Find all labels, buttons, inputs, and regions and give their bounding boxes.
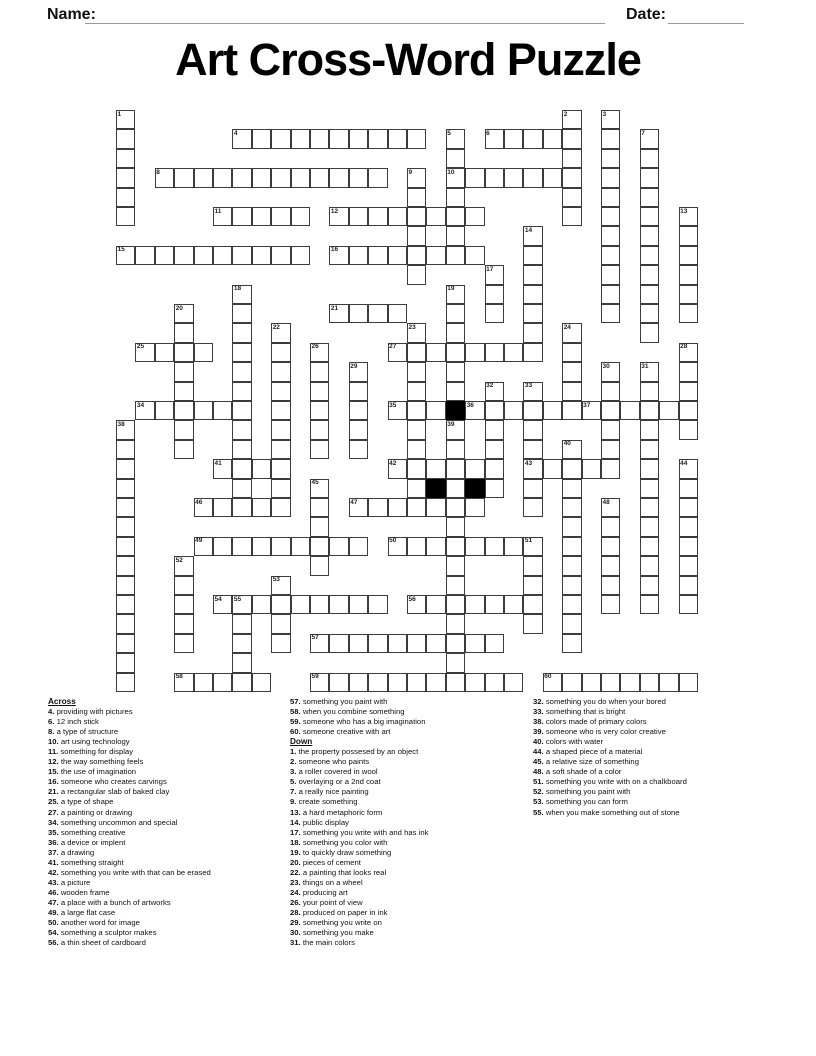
grid-cell[interactable] (407, 343, 426, 362)
grid-cell[interactable] (504, 401, 523, 420)
grid-cell[interactable] (562, 634, 581, 653)
grid-cell[interactable] (640, 129, 659, 148)
grid-cell[interactable] (271, 362, 290, 381)
grid-cell[interactable] (310, 595, 329, 614)
grid-cell[interactable] (446, 362, 465, 381)
grid-cell[interactable] (504, 343, 523, 362)
grid-cell[interactable] (252, 673, 271, 692)
grid-cell[interactable] (679, 420, 698, 439)
grid-cell[interactable] (271, 614, 290, 633)
grid-cell[interactable] (388, 673, 407, 692)
grid-cell[interactable] (640, 304, 659, 323)
grid-cell[interactable] (271, 246, 290, 265)
grid-cell[interactable] (465, 168, 484, 187)
grid-cell[interactable] (523, 401, 542, 420)
grid-cell[interactable] (562, 440, 581, 459)
grid-cell[interactable] (504, 537, 523, 556)
grid-cell[interactable] (116, 188, 135, 207)
grid-cell[interactable] (679, 595, 698, 614)
grid-cell[interactable] (465, 246, 484, 265)
grid-cell[interactable] (368, 673, 387, 692)
grid-cell[interactable] (271, 401, 290, 420)
grid-cell[interactable] (232, 634, 251, 653)
grid-cell[interactable] (368, 595, 387, 614)
grid-cell[interactable] (174, 304, 193, 323)
grid-cell[interactable] (601, 382, 620, 401)
grid-cell[interactable] (194, 537, 213, 556)
grid-cell[interactable] (271, 323, 290, 342)
grid-cell[interactable] (349, 207, 368, 226)
grid-cell[interactable] (426, 401, 445, 420)
grid-cell[interactable] (174, 246, 193, 265)
grid-cell[interactable] (679, 304, 698, 323)
grid-cell[interactable] (174, 673, 193, 692)
grid-cell[interactable] (291, 595, 310, 614)
grid-cell[interactable] (407, 634, 426, 653)
grid-cell[interactable] (523, 323, 542, 342)
grid-cell[interactable] (155, 343, 174, 362)
grid-cell[interactable] (446, 614, 465, 633)
grid-cell[interactable] (174, 362, 193, 381)
grid-cell[interactable] (252, 498, 271, 517)
grid-cell[interactable] (523, 459, 542, 478)
grid-cell[interactable] (349, 246, 368, 265)
grid-cell[interactable] (329, 595, 348, 614)
grid-cell[interactable] (368, 498, 387, 517)
grid-cell[interactable] (116, 479, 135, 498)
grid-cell[interactable] (446, 556, 465, 575)
grid-cell[interactable] (116, 556, 135, 575)
grid-cell[interactable] (640, 576, 659, 595)
grid-cell[interactable] (601, 401, 620, 420)
grid-cell[interactable] (523, 226, 542, 245)
grid-cell[interactable] (232, 420, 251, 439)
grid-cell[interactable] (310, 517, 329, 536)
grid-cell[interactable] (446, 168, 465, 187)
grid-cell[interactable] (446, 343, 465, 362)
grid-cell[interactable] (679, 517, 698, 536)
grid-cell[interactable] (213, 168, 232, 187)
grid-cell[interactable] (504, 673, 523, 692)
grid-cell[interactable] (504, 129, 523, 148)
grid-cell[interactable] (329, 168, 348, 187)
grid-cell[interactable] (310, 673, 329, 692)
grid-cell[interactable] (523, 285, 542, 304)
grid-cell[interactable] (601, 537, 620, 556)
grid-cell[interactable] (601, 498, 620, 517)
grid-cell[interactable] (388, 207, 407, 226)
grid-cell[interactable] (601, 129, 620, 148)
grid-cell[interactable] (620, 401, 639, 420)
grid-cell[interactable] (349, 537, 368, 556)
grid-cell[interactable] (291, 537, 310, 556)
grid-cell[interactable] (446, 653, 465, 672)
grid-cell[interactable] (523, 595, 542, 614)
grid-cell[interactable] (640, 265, 659, 284)
grid-cell[interactable] (426, 537, 445, 556)
grid-cell[interactable] (310, 168, 329, 187)
grid-cell[interactable] (426, 634, 445, 653)
grid-cell[interactable] (388, 304, 407, 323)
grid-cell[interactable] (407, 595, 426, 614)
grid-cell[interactable] (504, 168, 523, 187)
grid-cell[interactable] (349, 440, 368, 459)
grid-cell[interactable] (562, 576, 581, 595)
grid-cell[interactable] (601, 517, 620, 536)
grid-cell[interactable] (174, 595, 193, 614)
grid-cell[interactable] (310, 634, 329, 653)
grid-cell[interactable] (446, 459, 465, 478)
grid-cell[interactable] (349, 168, 368, 187)
grid-cell[interactable] (679, 207, 698, 226)
grid-cell[interactable] (155, 246, 174, 265)
grid-cell[interactable] (116, 129, 135, 148)
grid-cell[interactable] (543, 129, 562, 148)
grid-cell[interactable] (310, 537, 329, 556)
grid-cell[interactable] (329, 634, 348, 653)
grid-cell[interactable] (679, 479, 698, 498)
grid-cell[interactable] (426, 246, 445, 265)
grid-cell[interactable] (562, 188, 581, 207)
grid-cell[interactable] (349, 401, 368, 420)
grid-cell[interactable] (523, 537, 542, 556)
grid-cell[interactable] (640, 246, 659, 265)
grid-cell[interactable] (135, 343, 154, 362)
grid-cell[interactable] (252, 168, 271, 187)
grid-cell[interactable] (601, 265, 620, 284)
grid-cell[interactable] (407, 537, 426, 556)
grid-cell[interactable] (523, 382, 542, 401)
grid-cell[interactable] (465, 673, 484, 692)
grid-cell[interactable] (504, 595, 523, 614)
grid-cell[interactable] (426, 595, 445, 614)
grid-cell[interactable] (271, 634, 290, 653)
grid-cell[interactable] (640, 595, 659, 614)
grid-cell[interactable] (523, 440, 542, 459)
grid-cell[interactable] (407, 207, 426, 226)
grid-cell[interactable] (485, 343, 504, 362)
grid-cell[interactable] (174, 323, 193, 342)
grid-cell[interactable] (368, 168, 387, 187)
grid-cell[interactable] (329, 246, 348, 265)
grid-cell[interactable] (640, 226, 659, 245)
grid-cell[interactable] (174, 401, 193, 420)
grid-cell[interactable] (465, 207, 484, 226)
grid-cell[interactable] (407, 129, 426, 148)
grid-cell[interactable] (562, 382, 581, 401)
grid-cell[interactable] (388, 498, 407, 517)
grid-cell[interactable] (679, 226, 698, 245)
grid-cell[interactable] (271, 459, 290, 478)
grid-cell[interactable] (426, 459, 445, 478)
grid-cell[interactable] (232, 479, 251, 498)
grid-cell[interactable] (407, 226, 426, 245)
grid-cell[interactable] (407, 498, 426, 517)
grid-cell[interactable] (485, 634, 504, 653)
grid-cell[interactable] (582, 673, 601, 692)
grid-cell[interactable] (601, 149, 620, 168)
grid-cell[interactable] (329, 673, 348, 692)
grid-cell[interactable] (485, 285, 504, 304)
grid-cell[interactable] (407, 362, 426, 381)
grid-cell[interactable] (562, 401, 581, 420)
grid-cell[interactable] (135, 401, 154, 420)
grid-cell[interactable] (601, 673, 620, 692)
grid-cell[interactable] (407, 246, 426, 265)
grid-cell[interactable] (174, 614, 193, 633)
grid-cell[interactable] (640, 188, 659, 207)
grid-cell[interactable] (485, 440, 504, 459)
grid-cell[interactable] (252, 459, 271, 478)
grid-cell[interactable] (252, 129, 271, 148)
grid-cell[interactable] (329, 129, 348, 148)
grid-cell[interactable] (562, 517, 581, 536)
grid-cell[interactable] (232, 285, 251, 304)
grid-cell[interactable] (485, 420, 504, 439)
grid-cell[interactable] (271, 168, 290, 187)
grid-cell[interactable] (116, 459, 135, 478)
grid-cell[interactable] (679, 343, 698, 362)
grid-cell[interactable] (640, 323, 659, 342)
grid-cell[interactable] (174, 634, 193, 653)
grid-cell[interactable] (640, 673, 659, 692)
grid-cell[interactable] (426, 498, 445, 517)
grid-cell[interactable] (485, 459, 504, 478)
grid-cell[interactable] (232, 129, 251, 148)
grid-cell[interactable] (446, 188, 465, 207)
grid-cell[interactable] (601, 459, 620, 478)
grid-cell[interactable] (446, 149, 465, 168)
grid-cell[interactable] (562, 362, 581, 381)
grid-cell[interactable] (582, 459, 601, 478)
grid-cell[interactable] (194, 673, 213, 692)
grid-cell[interactable] (271, 576, 290, 595)
grid-cell[interactable] (407, 673, 426, 692)
grid-cell[interactable] (232, 498, 251, 517)
grid-cell[interactable] (232, 207, 251, 226)
grid-cell[interactable] (407, 265, 426, 284)
grid-cell[interactable] (388, 246, 407, 265)
grid-cell[interactable] (640, 459, 659, 478)
grid-cell[interactable] (155, 168, 174, 187)
grid-cell[interactable] (252, 537, 271, 556)
grid-cell[interactable] (485, 382, 504, 401)
grid-cell[interactable] (310, 440, 329, 459)
grid-cell[interactable] (116, 653, 135, 672)
grid-cell[interactable] (679, 498, 698, 517)
grid-cell[interactable] (291, 129, 310, 148)
grid-cell[interactable] (252, 207, 271, 226)
grid-cell[interactable] (465, 634, 484, 653)
grid-cell[interactable] (407, 440, 426, 459)
grid-cell[interactable] (116, 517, 135, 536)
grid-cell[interactable] (446, 440, 465, 459)
grid-cell[interactable] (116, 440, 135, 459)
grid-cell[interactable] (465, 595, 484, 614)
grid-cell[interactable] (601, 285, 620, 304)
grid-cell[interactable] (426, 207, 445, 226)
grid-cell[interactable] (601, 188, 620, 207)
grid-cell[interactable] (232, 343, 251, 362)
grid-cell[interactable] (446, 207, 465, 226)
grid-cell[interactable] (640, 168, 659, 187)
grid-cell[interactable] (446, 285, 465, 304)
grid-cell[interactable] (310, 129, 329, 148)
grid-cell[interactable] (271, 440, 290, 459)
grid-cell[interactable] (562, 498, 581, 517)
grid-cell[interactable] (562, 207, 581, 226)
grid-cell[interactable] (329, 207, 348, 226)
grid-cell[interactable] (523, 246, 542, 265)
grid-cell[interactable] (543, 401, 562, 420)
grid-cell[interactable] (213, 459, 232, 478)
grid-cell[interactable] (640, 479, 659, 498)
grid-cell[interactable] (562, 110, 581, 129)
grid-cell[interactable] (640, 440, 659, 459)
grid-cell[interactable] (679, 576, 698, 595)
grid-cell[interactable] (601, 246, 620, 265)
grid-cell[interactable] (213, 207, 232, 226)
grid-cell[interactable] (543, 673, 562, 692)
grid-cell[interactable] (174, 343, 193, 362)
grid-cell[interactable] (310, 420, 329, 439)
grid-cell[interactable] (659, 401, 678, 420)
grid-cell[interactable] (232, 168, 251, 187)
grid-cell[interactable] (291, 246, 310, 265)
grid-cell[interactable] (485, 304, 504, 323)
grid-cell[interactable] (213, 673, 232, 692)
grid-cell[interactable] (232, 362, 251, 381)
grid-cell[interactable] (446, 537, 465, 556)
grid-cell[interactable] (271, 343, 290, 362)
grid-cell[interactable] (640, 517, 659, 536)
grid-cell[interactable] (601, 556, 620, 575)
grid-cell[interactable] (349, 129, 368, 148)
grid-cell[interactable] (601, 168, 620, 187)
grid-cell[interactable] (174, 576, 193, 595)
grid-cell[interactable] (562, 537, 581, 556)
grid-cell[interactable] (388, 634, 407, 653)
grid-cell[interactable] (155, 401, 174, 420)
grid-cell[interactable] (174, 382, 193, 401)
grid-cell[interactable] (562, 323, 581, 342)
grid-cell[interactable] (446, 517, 465, 536)
grid-cell[interactable] (582, 401, 601, 420)
grid-cell[interactable] (446, 129, 465, 148)
grid-cell[interactable] (116, 614, 135, 633)
grid-cell[interactable] (349, 498, 368, 517)
grid-cell[interactable] (407, 382, 426, 401)
grid-cell[interactable] (562, 459, 581, 478)
grid-cell[interactable] (194, 401, 213, 420)
grid-cell[interactable] (679, 556, 698, 575)
grid-cell[interactable] (640, 556, 659, 575)
grid-cell[interactable] (252, 246, 271, 265)
grid-cell[interactable] (426, 673, 445, 692)
grid-cell[interactable] (523, 304, 542, 323)
grid-cell[interactable] (174, 168, 193, 187)
grid-cell[interactable] (310, 498, 329, 517)
grid-cell[interactable] (329, 537, 348, 556)
grid-cell[interactable] (349, 382, 368, 401)
grid-cell[interactable] (116, 420, 135, 439)
grid-cell[interactable] (465, 459, 484, 478)
grid-cell[interactable] (407, 168, 426, 187)
grid-cell[interactable] (232, 537, 251, 556)
grid-cell[interactable] (446, 498, 465, 517)
grid-cell[interactable] (232, 382, 251, 401)
grid-cell[interactable] (271, 537, 290, 556)
grid-cell[interactable] (562, 479, 581, 498)
grid-cell[interactable] (116, 149, 135, 168)
grid-cell[interactable] (640, 207, 659, 226)
grid-cell[interactable] (485, 479, 504, 498)
grid-cell[interactable] (407, 479, 426, 498)
grid-cell[interactable] (252, 595, 271, 614)
grid-cell[interactable] (562, 556, 581, 575)
grid-cell[interactable] (562, 343, 581, 362)
grid-cell[interactable] (116, 498, 135, 517)
grid-cell[interactable] (523, 265, 542, 284)
grid-cell[interactable] (679, 673, 698, 692)
grid-cell[interactable] (446, 634, 465, 653)
grid-cell[interactable] (388, 343, 407, 362)
grid-cell[interactable] (213, 401, 232, 420)
grid-cell[interactable] (485, 168, 504, 187)
grid-cell[interactable] (601, 226, 620, 245)
grid-cell[interactable] (271, 595, 290, 614)
grid-cell[interactable] (232, 304, 251, 323)
grid-cell[interactable] (271, 129, 290, 148)
grid-cell[interactable] (116, 168, 135, 187)
grid-cell[interactable] (388, 129, 407, 148)
grid-cell[interactable] (446, 246, 465, 265)
grid-cell[interactable] (194, 246, 213, 265)
grid-cell[interactable] (679, 537, 698, 556)
grid-cell[interactable] (407, 188, 426, 207)
grid-cell[interactable] (271, 479, 290, 498)
grid-cell[interactable] (659, 673, 678, 692)
grid-cell[interactable] (116, 246, 135, 265)
grid-cell[interactable] (543, 459, 562, 478)
grid-cell[interactable] (543, 168, 562, 187)
grid-cell[interactable] (446, 226, 465, 245)
grid-cell[interactable] (407, 459, 426, 478)
grid-cell[interactable] (407, 420, 426, 439)
grid-cell[interactable] (232, 614, 251, 633)
grid-cell[interactable] (349, 362, 368, 381)
grid-cell[interactable] (485, 401, 504, 420)
grid-cell[interactable] (485, 595, 504, 614)
grid-cell[interactable] (679, 265, 698, 284)
grid-cell[interactable] (174, 556, 193, 575)
grid-cell[interactable] (232, 440, 251, 459)
grid-cell[interactable] (601, 420, 620, 439)
grid-cell[interactable] (465, 343, 484, 362)
grid-cell[interactable] (679, 382, 698, 401)
grid-cell[interactable] (679, 362, 698, 381)
grid-cell[interactable] (116, 207, 135, 226)
grid-cell[interactable] (213, 246, 232, 265)
grid-cell[interactable] (271, 420, 290, 439)
grid-cell[interactable] (291, 168, 310, 187)
grid-cell[interactable] (523, 343, 542, 362)
grid-cell[interactable] (679, 401, 698, 420)
grid-cell[interactable] (679, 459, 698, 478)
grid-cell[interactable] (310, 362, 329, 381)
grid-cell[interactable] (310, 479, 329, 498)
grid-cell[interactable] (523, 420, 542, 439)
